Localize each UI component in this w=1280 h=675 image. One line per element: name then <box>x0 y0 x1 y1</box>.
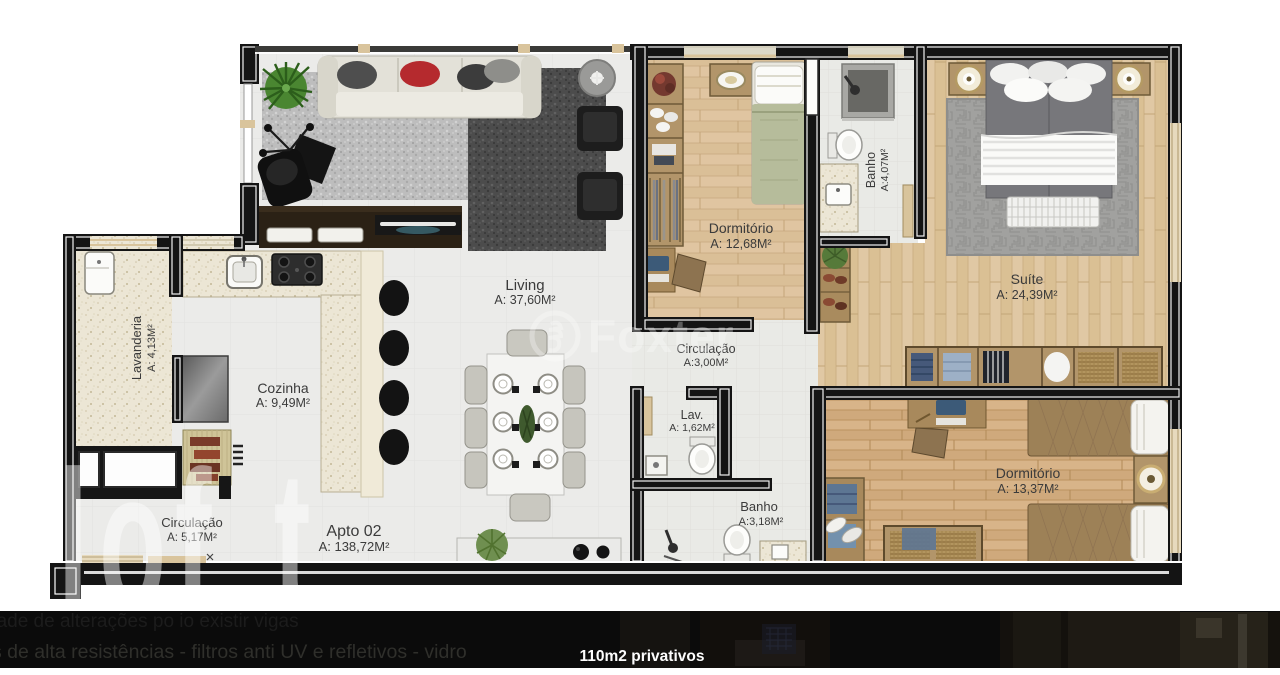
svg-text:A: 37,60M²: A: 37,60M² <box>494 293 555 307</box>
svg-text:Banho: Banho <box>864 152 878 188</box>
svg-text:Dormitório: Dormitório <box>996 465 1061 481</box>
svg-text:A: 4,13M²: A: 4,13M² <box>146 324 158 372</box>
svg-text:A: 1,62M²: A: 1,62M² <box>669 422 715 434</box>
svg-text:Living: Living <box>505 277 544 294</box>
svg-text:A: 9,49M²: A: 9,49M² <box>256 396 310 410</box>
svg-text:Suíte: Suíte <box>1011 271 1044 287</box>
svg-text:dade de alterações po io e: dade de alterações po io existir vigas <box>0 611 299 632</box>
svg-text:A:4,07M²: A:4,07M² <box>879 148 891 191</box>
svg-text:A: 24,39M²: A: 24,39M² <box>996 288 1057 302</box>
svg-text:Apto 02: Apto 02 <box>326 523 381 540</box>
svg-text:Dormitório: Dormitório <box>709 220 774 236</box>
svg-text:Foxter: Foxter <box>588 310 735 362</box>
svg-text:A: 12,68M²: A: 12,68M² <box>710 237 771 251</box>
svg-text:Lavanderia: Lavanderia <box>129 315 144 380</box>
svg-text:A: 138,72M²: A: 138,72M² <box>319 539 390 554</box>
svg-text:Banho: Banho <box>740 499 778 514</box>
svg-text:A: 13,37M²: A: 13,37M² <box>997 482 1058 496</box>
svg-text:Cozinha: Cozinha <box>257 380 309 396</box>
svg-text:s de alta resistências - filtr: s de alta resistências - filtros anti UV… <box>0 641 467 663</box>
svg-text:Lav.: Lav. <box>681 408 704 422</box>
svg-text:110m2 privativos: 110m2 privativos <box>580 648 705 665</box>
svg-text:A:3,18M²: A:3,18M² <box>739 516 784 528</box>
